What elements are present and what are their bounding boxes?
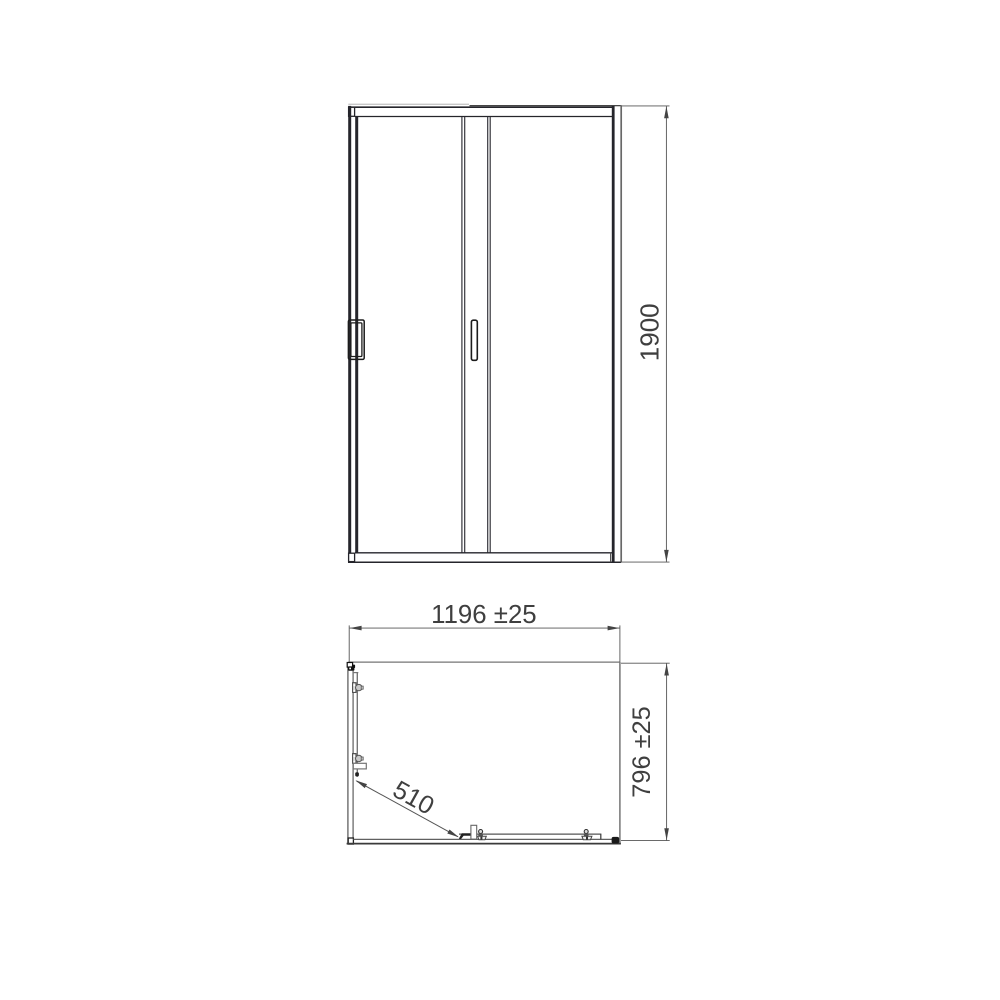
svg-text:1900: 1900 bbox=[634, 303, 664, 361]
svg-text:796 ±25: 796 ±25 bbox=[628, 706, 656, 798]
svg-text:1196 ±25: 1196 ±25 bbox=[431, 601, 537, 629]
